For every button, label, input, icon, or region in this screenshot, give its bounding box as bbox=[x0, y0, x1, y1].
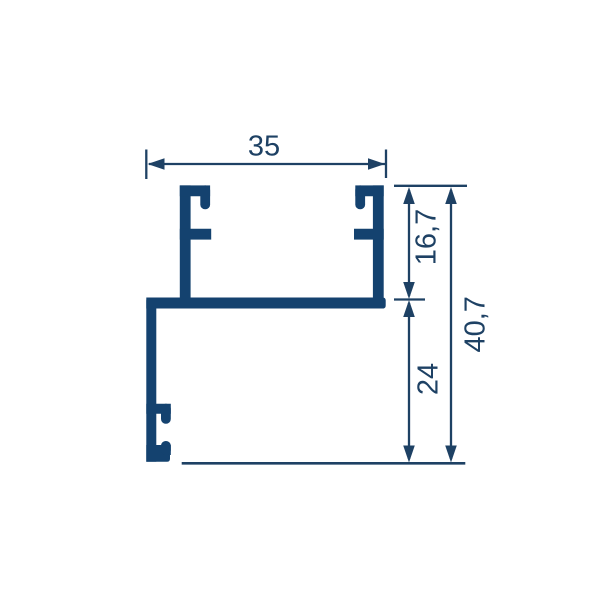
svg-text:40,7: 40,7 bbox=[460, 296, 492, 352]
svg-text:16,7: 16,7 bbox=[411, 209, 443, 265]
svg-text:35: 35 bbox=[248, 131, 280, 163]
svg-text:24: 24 bbox=[413, 363, 445, 395]
